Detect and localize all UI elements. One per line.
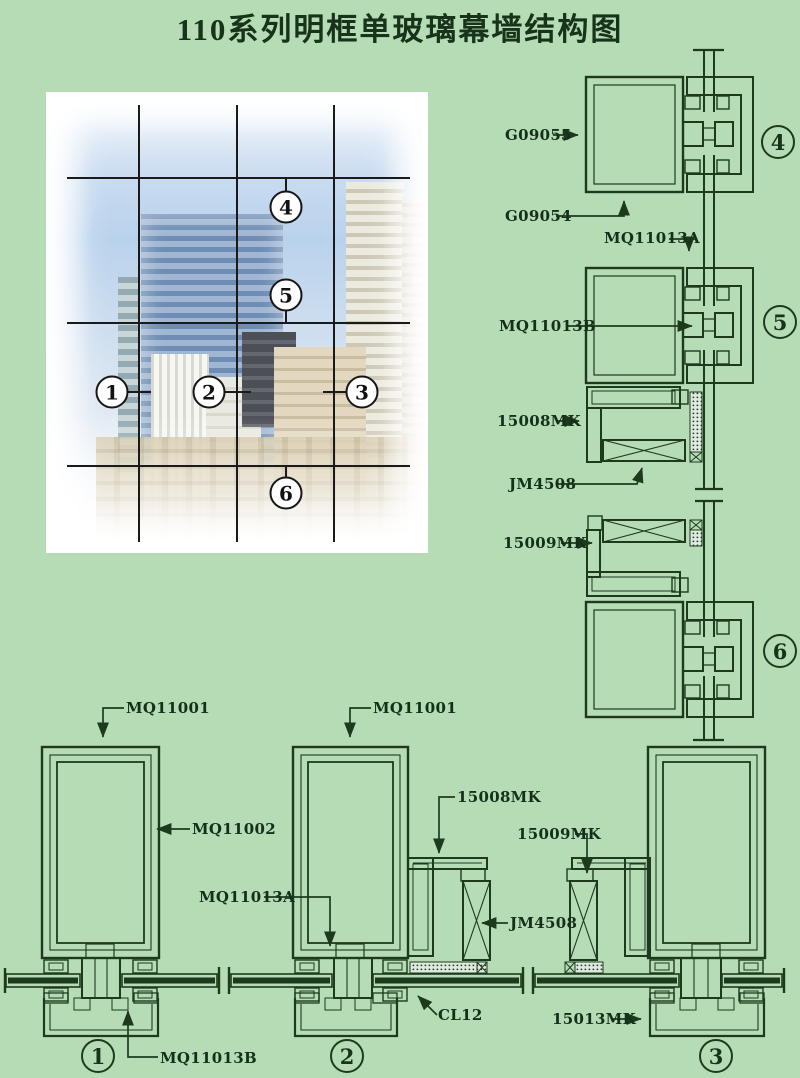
technical-linework (0, 0, 800, 1078)
label-jm4508-bottom: JM4508 (510, 916, 577, 931)
detail-4-section (586, 77, 753, 192)
label-15009mk-bottom: 15009MK (517, 827, 601, 842)
leader-mq11013b-bottom (128, 1011, 158, 1057)
section-marker-2: 2 (330, 1039, 364, 1073)
leader-mq11001-s1 (103, 708, 124, 737)
label-mq11001-s2: MQ11001 (373, 701, 457, 716)
drawing-sheet: 110系列明框单玻璃幕墙结构图 1 2 3 4 5 6 (0, 0, 800, 1078)
leader-mq11001-s2 (350, 708, 371, 737)
detail-marker-4: 4 (761, 125, 795, 159)
detail-marker-5: 5 (763, 305, 797, 339)
label-mq11013a-bottom: MQ11013A (199, 890, 295, 905)
label-g09055: G09055 (505, 128, 572, 143)
detail-marker-6: 6 (763, 634, 797, 668)
glass-line-bottom (5, 967, 784, 994)
mullion-section-2 (293, 747, 408, 1036)
detail-6-section (586, 602, 753, 717)
label-mq11013b-right: MQ11013B (499, 319, 596, 334)
section-marker-3: 3 (699, 1039, 733, 1073)
section-marker-1: 1 (81, 1039, 115, 1073)
label-mq11013b-bottom: MQ11013B (160, 1051, 257, 1066)
transom-15009-bottom (565, 858, 650, 973)
mullion-section-3 (648, 747, 765, 1036)
label-mq11002: MQ11002 (192, 822, 276, 837)
label-15009mk-right: 15009MK (503, 536, 587, 551)
leader-cl12 (418, 996, 437, 1015)
mullion-section-1 (42, 747, 159, 1036)
label-mq11001-s1: MQ11001 (126, 701, 210, 716)
label-15013mk: 15013MK (552, 1012, 636, 1027)
label-mq11013a-right: MQ11013A (604, 231, 700, 246)
label-jm4508-right: JM4508 (509, 477, 576, 492)
label-15008mk-bottom: 15008MK (457, 790, 541, 805)
leader-15008mk-bottom (439, 797, 455, 853)
transom-15009-right (587, 516, 702, 596)
transom-15008-right (587, 387, 702, 462)
label-15008mk-right: 15008MK (497, 414, 581, 429)
label-g09054: G09054 (505, 209, 572, 224)
transom-15008-bottom (408, 858, 490, 973)
label-cl12: CL12 (438, 1008, 483, 1023)
